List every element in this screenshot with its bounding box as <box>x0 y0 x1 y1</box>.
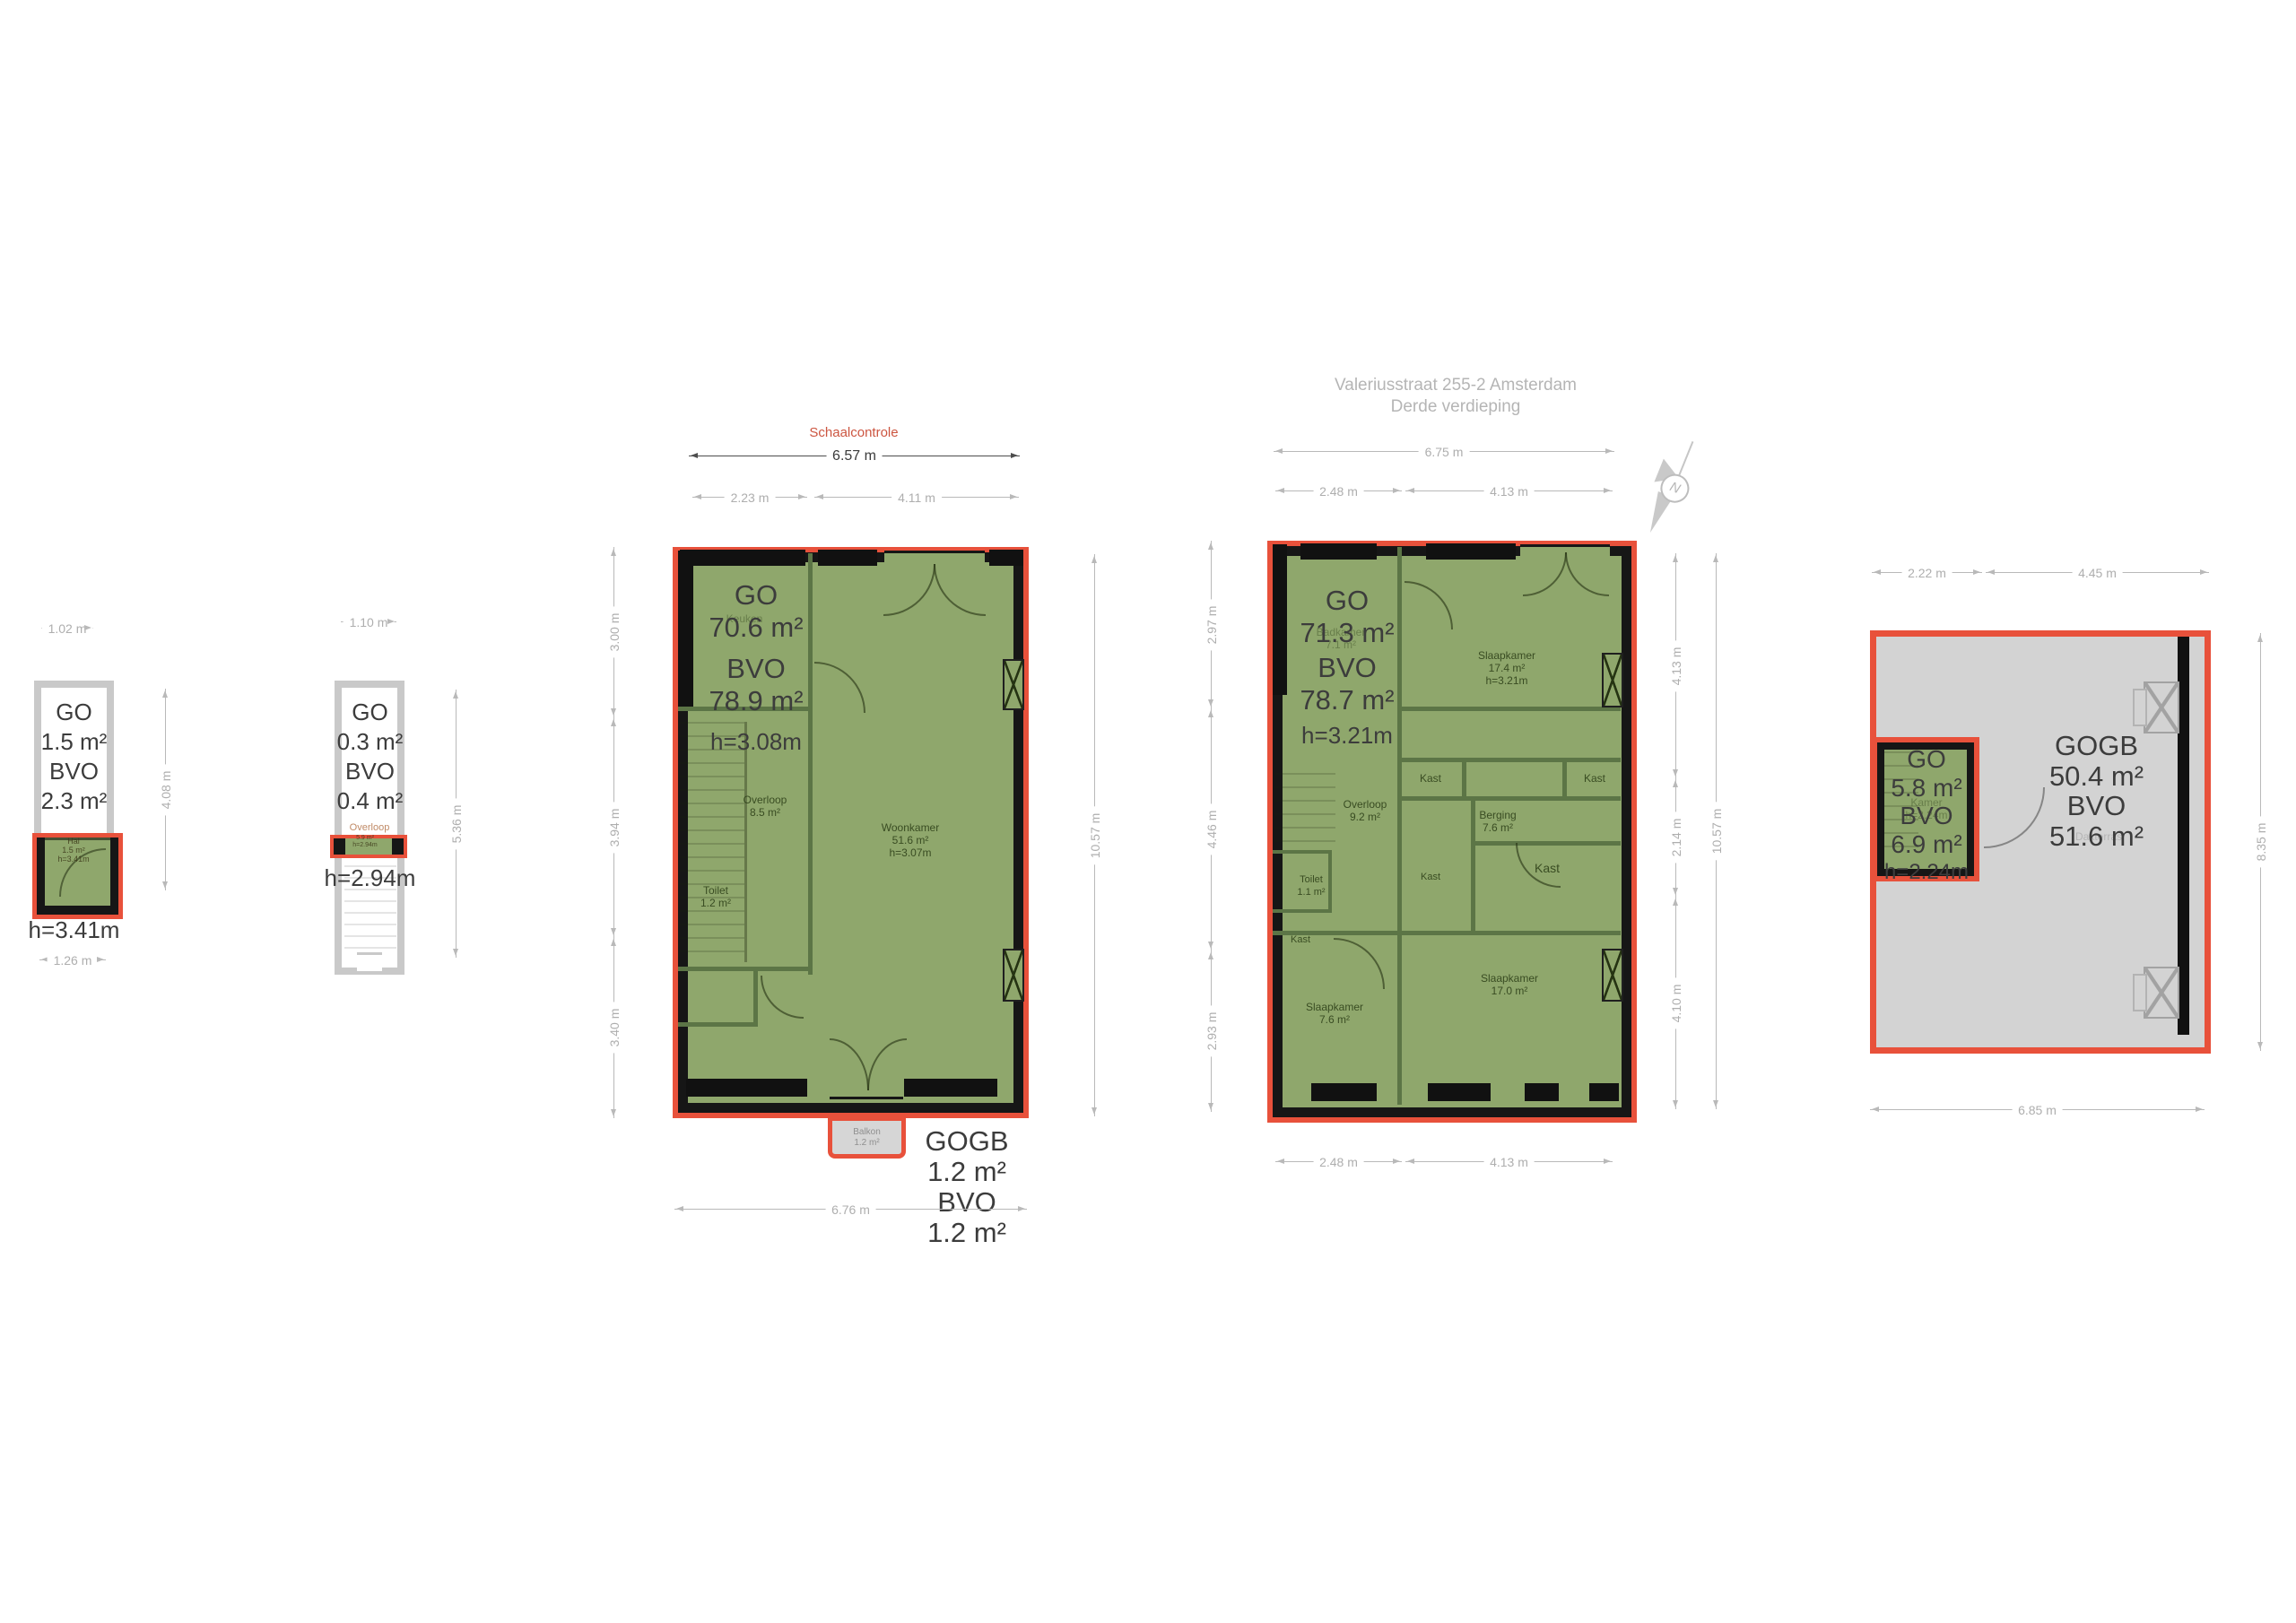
dim-derde-top-left: 2.48 m <box>1275 490 1402 491</box>
dim-derde-top: 6.75 m <box>1274 451 1614 452</box>
room-label-slaapkamer-top: Slaapkamer 17.4 m² h=3.21m <box>1478 649 1535 687</box>
partition <box>1471 801 1475 931</box>
hal-height: h=3.41m <box>9 916 139 943</box>
dim-hal-top: 1.02 m <box>41 628 93 629</box>
partition <box>1402 796 1621 801</box>
derde-stairs <box>1274 773 1335 848</box>
dim-label: 2.14 m <box>1669 812 1683 864</box>
dim-overloop-right: 5.36 m <box>456 690 457 958</box>
dim-tweede-left-3: 3.40 m <box>613 937 614 1118</box>
bvo-value: 6.9 m² <box>1855 830 1998 859</box>
title-floor: Derde verdieping <box>1276 396 1635 418</box>
dim-label: 4.08 m <box>159 764 173 815</box>
dim-derde-right-2: 2.14 m <box>1675 778 1676 897</box>
window-sill <box>2133 689 2147 726</box>
dim-label: 6.76 m <box>825 1202 876 1217</box>
dim-derde-left-2: 4.46 m <box>1211 708 1212 950</box>
title-address: Valeriusstraat 255-2 Amsterdam <box>1276 375 1635 396</box>
dim-label: 4.13 m <box>1483 1155 1535 1169</box>
partition <box>753 967 758 1027</box>
go-value: 71.3 m² <box>1275 617 1419 649</box>
dim-label: 4.11 m <box>891 490 942 505</box>
dim-derde-bottom-right: 4.13 m <box>1405 1161 1613 1162</box>
dim-derde-right-1: 4.13 m <box>1675 553 1676 778</box>
dim-vierde-right: 8.35 m <box>2260 633 2261 1051</box>
room-label-toilet: Toilet 1.1 m² <box>1297 873 1325 898</box>
partition <box>1328 850 1332 913</box>
dim-derde-right-3: 4.10 m <box>1675 897 1676 1109</box>
room-label-kast: Kast <box>1420 772 1441 785</box>
dim-vierde-top-left: 2.22 m <box>1872 572 1982 573</box>
dim-label: 1.02 m <box>42 621 93 636</box>
wall-window-segment <box>818 550 877 566</box>
go-label: GO <box>1275 585 1419 617</box>
stairs-edge <box>744 722 747 962</box>
window-sill <box>2133 974 2147 1011</box>
dim-label: 8.35 m <box>2254 817 2268 868</box>
dim-label: 4.45 m <box>2072 566 2123 580</box>
partition <box>678 1022 758 1027</box>
room-label-overloop: Overloop 8.5 m² <box>744 794 787 819</box>
dim-tweede-top-right: 4.11 m <box>814 497 1019 498</box>
dim-label: 3.40 m <box>607 1002 622 1054</box>
wall-window-segment <box>686 1079 807 1097</box>
go-label: GO <box>9 698 139 727</box>
partition <box>1462 758 1466 801</box>
dim-tweede-left-2: 3.94 m <box>613 717 614 937</box>
measurement-sheet: 1.02 m GO 1.5 m² BVO 2.3 m² Hal 1.5 m² h… <box>0 0 2296 1623</box>
dim-label: 6.85 m <box>2012 1103 2063 1117</box>
go-value: 70.6 m² <box>684 612 828 644</box>
hal-room-label: Hal 1.5 m² h=3.41m <box>57 837 89 864</box>
dim-tweede-top-left: 2.23 m <box>692 497 807 498</box>
room-label-toilet: Toilet 1.2 m² <box>700 884 731 909</box>
partition <box>1402 758 1621 762</box>
dim-overloop-top: 1.10 m <box>341 621 396 622</box>
room-label-kast: Kast <box>1584 772 1605 785</box>
wall-window-segment <box>1300 543 1377 560</box>
partition <box>1273 931 1621 935</box>
wall-window-segment <box>1525 1083 1559 1101</box>
bvo-label: BVO <box>1855 802 1998 830</box>
go-label: GO <box>305 698 435 727</box>
room-label-kast: Kast <box>1291 933 1310 946</box>
wall-window-segment <box>1589 1083 1619 1101</box>
dim-label: 4.13 m <box>1483 484 1535 499</box>
vierde-summary: GO 5.8 m² BVO 6.9 m² h=2.24m <box>1855 745 1998 887</box>
bvo-value: 0.4 m² <box>305 786 435 816</box>
dim-label: 10.57 m <box>1709 803 1724 861</box>
dim-label: 2.23 m <box>725 490 776 505</box>
dim-tweede-bottom: 6.76 m <box>674 1209 1027 1210</box>
window-icon <box>1003 659 1024 710</box>
window-icon <box>2144 681 2179 733</box>
room-label-slaapkamer-br: Slaapkamer 17.0 m² <box>1481 972 1538 997</box>
go-label: GO <box>1855 745 1998 774</box>
bvo-label: BVO <box>305 757 435 786</box>
bvo-value: 2.3 m² <box>9 786 139 816</box>
bvo-label: BVO <box>1275 652 1419 684</box>
tweede-stairs <box>680 722 744 962</box>
dim-label: 4.46 m <box>1205 804 1219 855</box>
derde-summary-go: GO 71.3 m² <box>1275 585 1419 649</box>
partition <box>1402 707 1621 711</box>
height: h=2.24m <box>1855 858 1998 887</box>
room-label-woonkamer: Woonkamer 51.6 m² h=3.07m <box>882 821 939 859</box>
dim-label: 2.97 m <box>1205 599 1219 650</box>
dim-label: 6.75 m <box>1419 445 1470 459</box>
dim-label: 2.22 m <box>1901 566 1952 580</box>
partition <box>678 967 813 971</box>
derde-summary-bvo: BVO 78.7 m² <box>1275 652 1419 716</box>
overloop-door-notch <box>357 952 382 971</box>
dim-label: 1.26 m <box>48 953 99 968</box>
partition <box>1273 909 1332 913</box>
dim-label: 3.00 m <box>607 607 622 658</box>
dim-label: 6.57 m <box>826 448 883 464</box>
tweede-height: h=3.08m <box>684 728 828 755</box>
dim-derde-bottom-left: 2.48 m <box>1275 1161 1402 1162</box>
go-value: 0.3 m² <box>305 727 435 757</box>
partition <box>1273 850 1332 854</box>
window-icon <box>1003 949 1024 1002</box>
dim-derde-top-right: 4.13 m <box>1405 490 1613 491</box>
dim-derde-right-total: 10.57 m <box>1716 553 1717 1109</box>
tweede-summary-bvo: BVO 78.9 m² <box>684 653 828 717</box>
dim-label: 1.10 m <box>344 615 395 629</box>
dim-label: 4.13 m <box>1669 640 1683 691</box>
dim-hal-bottom: 1.26 m <box>39 959 106 960</box>
balkon-label: Balkon 1.2 m² <box>853 1127 881 1149</box>
room-label-kast: Kast <box>1421 871 1440 883</box>
dim-label: 2.93 m <box>1205 1006 1219 1057</box>
room-label-kast: Kast <box>1535 862 1560 874</box>
overloop-summary: GO 0.3 m² BVO 0.4 m² <box>305 698 435 816</box>
dim-label: 10.57 m <box>1088 806 1102 864</box>
dim-label: 3.94 m <box>607 802 622 853</box>
bvo-value: 78.9 m² <box>684 685 828 717</box>
sheet-title: Valeriusstraat 255-2 Amsterdam Derde ver… <box>1276 375 1635 418</box>
bvo-label: BVO <box>9 757 139 786</box>
dim-tweede-right: 10.57 m <box>1094 554 1095 1116</box>
north-compass-icon: N <box>1617 427 1729 555</box>
dim-label: 2.48 m <box>1313 484 1364 499</box>
overloop-room-name: Overloop <box>350 821 390 834</box>
room-label-overloop: Overloop 9.2 m² <box>1344 798 1387 823</box>
derde-height: h=3.21m <box>1275 722 1419 749</box>
tweede-gogb-block: GOGB 1.2 m² BVO 1.2 m² <box>909 1126 1025 1248</box>
dim-vierde-top-right: 4.45 m <box>1986 572 2209 573</box>
bvo-value: 78.7 m² <box>1275 684 1419 716</box>
room-label-berging: Berging 7.6 m² <box>1479 809 1516 834</box>
partition <box>1562 758 1567 801</box>
room-label-slaapkamer-bl: Slaapkamer 7.6 m² <box>1306 1001 1363 1026</box>
wall-window-segment <box>904 1079 997 1097</box>
dim-hal-right: 4.08 m <box>165 689 166 890</box>
overloop-height: h=2.94m <box>305 864 435 891</box>
dim-label: 5.36 m <box>449 798 464 849</box>
window-icon <box>1602 949 1623 1002</box>
overloop-strip-label: 5.9 m² h=2.94m <box>352 835 377 849</box>
window-icon <box>2144 967 2179 1019</box>
window-icon <box>1602 653 1623 707</box>
dim-label: 4.10 m <box>1669 977 1683 1028</box>
wall-window-segment <box>1311 1083 1377 1101</box>
dim-scale-check: 6.57 m <box>689 456 1020 456</box>
bvo-label: BVO <box>684 653 828 685</box>
tweede-summary-go: GO 70.6 m² <box>684 579 828 644</box>
balkon-box: Balkon 1.2 m² <box>828 1116 906 1159</box>
vierde-gogb-block: GOGB 50.4 m² BVO 51.6 m² <box>2022 731 2170 852</box>
go-label: GO <box>684 579 828 612</box>
wall-window-segment <box>1428 1083 1491 1101</box>
wall-window-segment <box>680 550 805 566</box>
go-value: 1.5 m² <box>9 727 139 757</box>
hal-summary: GO 1.5 m² BVO 2.3 m² <box>9 698 139 816</box>
dim-derde-left-3: 2.93 m <box>1211 950 1212 1112</box>
go-value: 5.8 m² <box>1855 774 1998 803</box>
wall-window-segment <box>989 550 1023 566</box>
dim-vierde-bottom: 6.85 m <box>1870 1109 2205 1110</box>
dim-tweede-left-1: 3.00 m <box>613 547 614 717</box>
dim-derde-left-1: 2.97 m <box>1211 541 1212 708</box>
scale-control-label: Schaalcontrole <box>764 425 944 440</box>
dim-label: 2.48 m <box>1313 1155 1364 1169</box>
wall-window-segment <box>1426 543 1516 560</box>
